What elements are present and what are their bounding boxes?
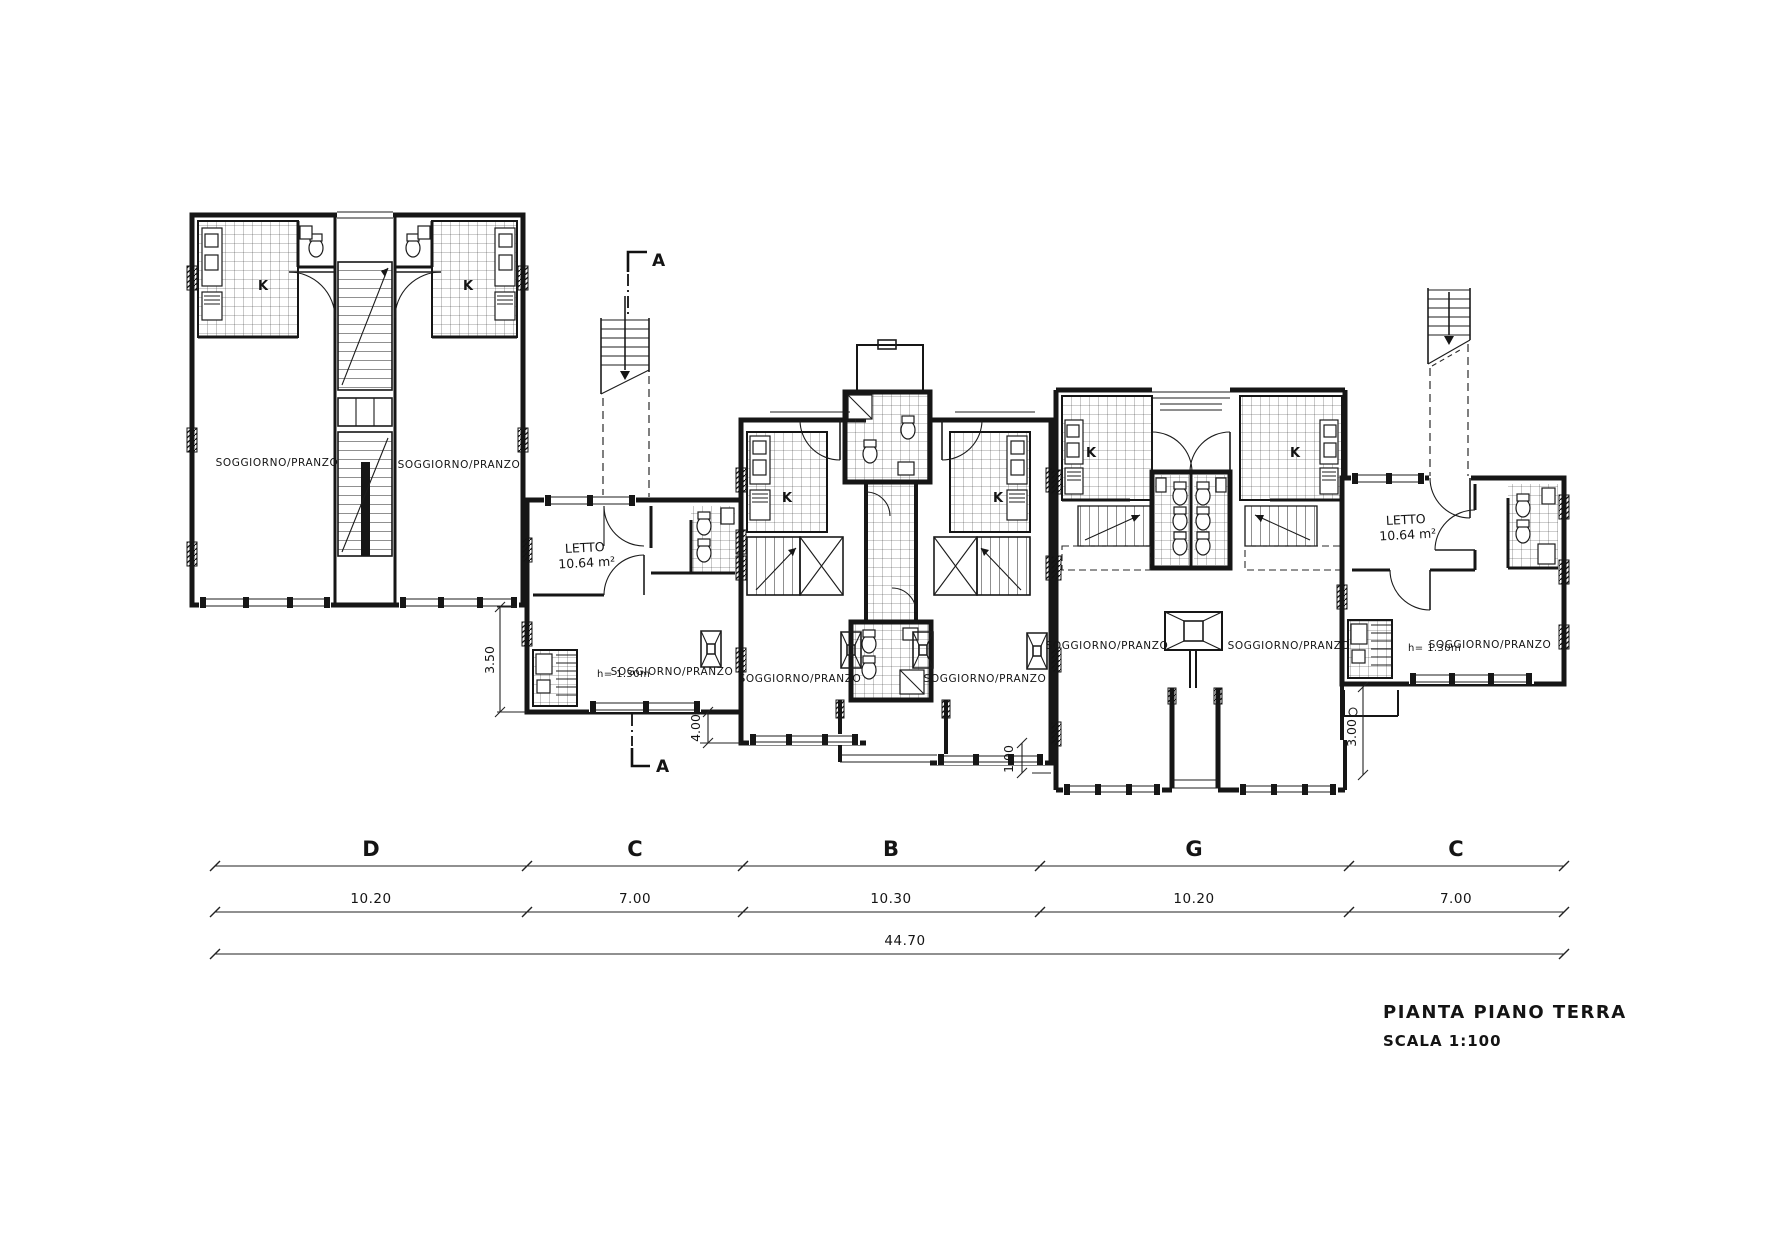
dim-g: 10.20 [1173,891,1214,907]
floor-plan-sheet: K K SOGGIORNO/PRANZO SOGGIORN [0,0,1772,1253]
block-c2: LETTO 10.64 m² h= 1.30m SOGGIORNO/PRANZO [1342,473,1569,716]
drawing-scale: SCALA 1:100 [1383,1032,1502,1050]
dim-c1: 7.00 [619,891,651,907]
dimension-row-sections: D C B G C [210,837,1569,871]
drawing-title: PIANTA PIANO TERRA [1383,1002,1627,1023]
section-marker-a-top: A [628,251,666,316]
room-area-letto: 10.64 m² [558,554,616,572]
section-letter-g: G [1185,837,1202,861]
kitchen-d-right [432,221,517,337]
kitchen-g-left [1062,396,1152,500]
block-c1: LETTO 10.64 m² h= 1.30m SOGGIORNO/PRANZO [522,495,746,712]
kitchen-c2 [1348,620,1392,678]
title-block: PIANTA PIANO TERRA SCALA 1:100 [1383,1002,1627,1050]
section-letter-c2: C [1448,837,1463,861]
external-stair-left [601,296,649,497]
section-letter-c1: C [627,837,642,861]
room-label-living: SOGGIORNO/PRANZO [739,673,862,685]
room-label-kitchen: K [782,491,793,506]
room-label-living: SOGGIORNO/PRANZO [1228,640,1351,652]
window [1409,673,1534,684]
stair-g-right [1245,506,1342,570]
svg-text:1.00: 1.00 [1001,745,1016,773]
room-label-kitchen: K [258,279,269,294]
dimension-row-total: 44.70 [210,933,1569,959]
room-label-kitchen: K [1290,446,1301,461]
entry-g [1152,404,1230,472]
window [544,495,636,506]
stair-g-left [1062,506,1150,570]
bath-b-bottom [851,622,931,700]
block-g: K K [1046,390,1351,795]
kitchen-b-left [747,432,827,532]
room-label-kitchen: K [993,491,1004,506]
external-stair-right [1428,288,1470,476]
room-label-living: SOGGIORNO/PRANZO [1046,640,1169,652]
window [1351,473,1425,484]
window [1063,784,1162,795]
bath-d-left [298,221,335,267]
window [937,754,1045,765]
kitchen-c1 [533,650,577,706]
room-label-living: SOGGIORNO/PRANZO [924,673,1047,685]
porch-c2 [1344,690,1398,716]
stair-b-left [747,537,843,595]
section-marker-a-bottom: A [632,714,670,777]
corridor-b [866,482,916,622]
kitchen-b-right [950,432,1030,532]
dim-total: 44.70 [884,933,925,949]
room-letto-c2 [1352,484,1475,610]
window [1239,784,1338,795]
section-letter-b: B [883,837,899,861]
baths-g [1152,472,1230,568]
window [589,701,701,712]
kitchen-d-left [198,221,298,337]
room-label-living: SOGGIORNO/PRANZO [216,457,339,469]
block-d: K K SOGGIORNO/PRANZO SOGGIORN [187,209,528,608]
bath-d-right [395,221,432,267]
room-label-living: SOGGIORNO/PRANZO [398,459,521,471]
room-label-kitchen: K [1086,446,1097,461]
room-label-living: SOGGIORNO/PRANZO [1429,639,1552,651]
dimension-row-lengths: 10.20 7.00 10.30 10.20 7.00 [210,891,1569,917]
stair-b-right [934,537,1030,595]
dimension-3-00: 3.00 [1344,682,1368,780]
svg-text:3.50: 3.50 [482,646,497,674]
fireplace-c1 [701,631,721,667]
dim-c2: 7.00 [1440,891,1472,907]
block-b: K K SOGGIORNO/PRANZO SOGGIORNO/PRANZO [736,340,1056,765]
window [749,734,860,745]
dim-b: 10.30 [870,891,911,907]
room-label-kitchen: K [463,279,474,294]
section-letter-d: D [362,837,379,861]
section-letter: A [652,251,666,271]
porch-g [1168,688,1222,788]
stair-d [338,262,392,556]
dimension-3-50: 3.50 [482,602,527,717]
dim-d: 10.20 [350,891,391,907]
room-area-letto: 10.64 m² [1379,526,1437,544]
fireplace-b-right-wall [1027,633,1047,669]
section-letter: A [656,757,670,777]
bath-c1 [651,506,735,573]
chimney-g [1165,612,1222,688]
svg-text:4.00: 4.00 [688,714,703,742]
bath-b-top [845,392,930,482]
bath-c2 [1508,484,1558,568]
svg-text:3.00: 3.00 [1344,719,1359,747]
window [199,597,331,608]
porch-b [836,700,950,762]
